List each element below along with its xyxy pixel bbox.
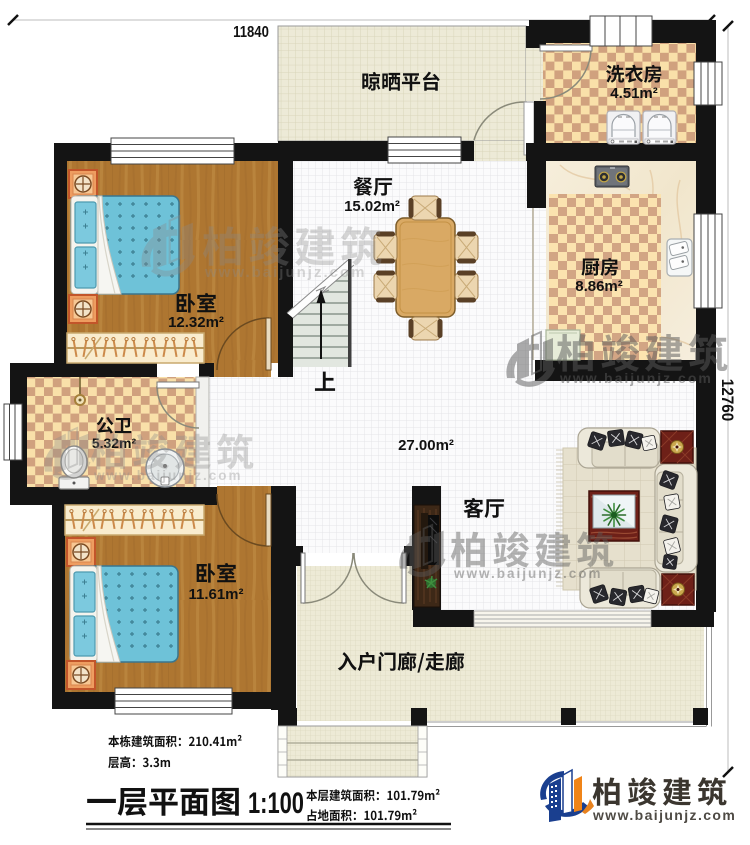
svg-text:1:100: 1:100 bbox=[248, 786, 304, 820]
svg-text:12.32m²: 12.32m² bbox=[168, 314, 224, 331]
svg-text:15.02m²: 15.02m² bbox=[344, 198, 400, 215]
svg-text:12760: 12760 bbox=[718, 379, 737, 422]
svg-text:www.baijunjz.com: www.baijunjz.com bbox=[592, 807, 736, 823]
svg-text:4.51m²: 4.51m² bbox=[610, 85, 658, 102]
svg-text:www.baijunjz.com: www.baijunjz.com bbox=[559, 370, 713, 386]
svg-text:27.00m²: 27.00m² bbox=[398, 437, 454, 454]
svg-text:11.61m²: 11.61m² bbox=[188, 586, 243, 603]
svg-text:8.86m²: 8.86m² bbox=[575, 278, 623, 295]
svg-text:11840: 11840 bbox=[233, 24, 269, 41]
svg-text:www.baijunjz.com: www.baijunjz.com bbox=[453, 566, 603, 581]
svg-text:www.baijunjz.com: www.baijunjz.com bbox=[93, 468, 243, 483]
svg-text:www.baijunjz.com: www.baijunjz.com bbox=[204, 264, 366, 281]
